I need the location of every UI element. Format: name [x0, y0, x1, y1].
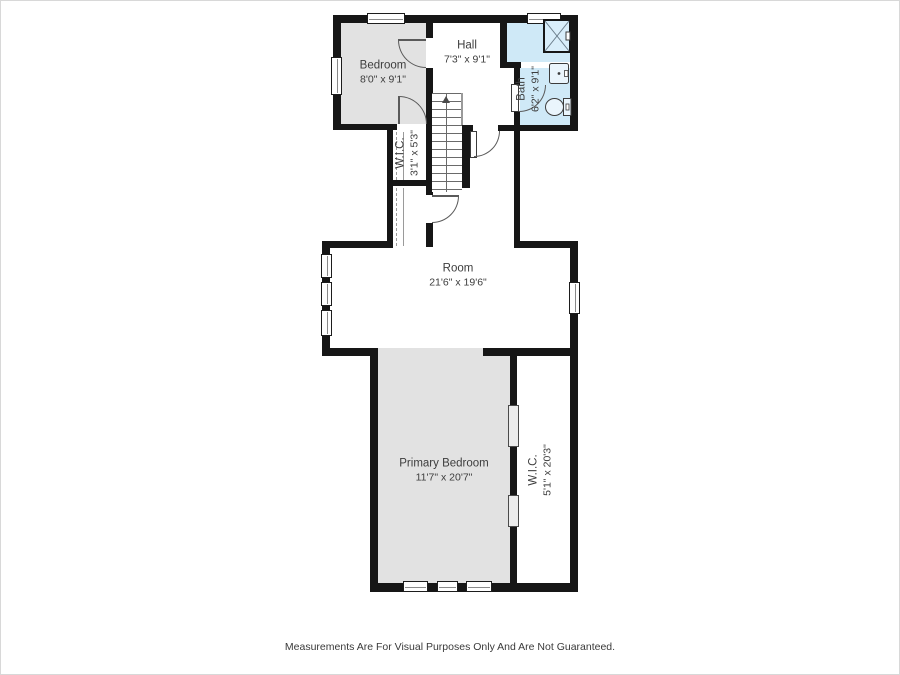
window	[321, 254, 332, 278]
wall-wic-bottom	[387, 180, 432, 186]
room-label-primary-bedroom: Primary Bedroom 11'7" x 20'7"	[399, 457, 488, 486]
shower-fixture	[543, 19, 571, 53]
room-name: Bath	[515, 66, 530, 112]
window	[569, 282, 580, 314]
room-name: W.I.C.	[394, 130, 409, 176]
room-label-wic-upper: W.I.C. 3'1" x 5'3"	[394, 130, 423, 176]
window	[367, 13, 405, 24]
window	[331, 57, 342, 95]
room-label-hall: Hall 7'3" x 9'1"	[444, 39, 490, 68]
room-dims: 21'6" x 19'6"	[429, 277, 487, 291]
room-primary-opening-fill	[378, 348, 483, 356]
wall-stair-stub	[462, 131, 470, 188]
wall-hall-bottom-b	[498, 125, 578, 131]
room-name: W.I.C.	[527, 444, 542, 496]
divider-door-panel-upper	[508, 405, 519, 447]
wall-landing-right	[514, 131, 520, 247]
room-dims: 6'2" x 9'1"	[530, 66, 544, 112]
wall-primary-wic-divider	[510, 348, 517, 592]
stairs-rail-line	[461, 93, 463, 125]
floor-plan-page: Bedroom 8'0" x 9'1" Hall 7'3" x 9'1" Bat…	[0, 0, 900, 675]
window	[466, 581, 492, 592]
room-dims: 3'1" x 5'3"	[409, 130, 423, 176]
divider-door-panel-lower	[508, 495, 519, 527]
door-arc	[432, 196, 459, 223]
room-dims: 11'7" x 20'7"	[399, 472, 488, 486]
room-name: Bedroom	[360, 59, 407, 74]
wall-primary-left	[370, 348, 378, 592]
room-dims: 5'1" x 20'3"	[542, 444, 556, 496]
closet-rod-dashed-lower	[396, 188, 397, 246]
wall-center-c	[426, 223, 433, 247]
toilet-fixture	[545, 97, 572, 117]
wall-wic-left	[387, 124, 393, 248]
wall-room-top-right	[514, 241, 578, 248]
window	[437, 581, 458, 592]
floor-plan: Bedroom 8'0" x 9'1" Hall 7'3" x 9'1" Bat…	[0, 0, 900, 675]
room-name: Room	[429, 262, 487, 277]
wall-bath-left-upper	[500, 15, 507, 68]
wall-bath-left-lower-b	[514, 112, 520, 125]
room-dims: 7'3" x 9'1"	[444, 54, 490, 68]
room-label-room: Room 21'6" x 19'6"	[429, 262, 487, 291]
window	[403, 581, 428, 592]
sink-fixture	[549, 63, 569, 84]
wall-room-top-left	[322, 241, 393, 248]
room-name: Hall	[444, 39, 490, 54]
wall-room-bottom-right	[483, 348, 578, 356]
disclaimer-text: Measurements Are For Visual Purposes Onl…	[285, 641, 615, 653]
wall-center-a	[426, 15, 433, 38]
room-dims: 8'0" x 9'1"	[360, 74, 407, 88]
stairs-center-line	[446, 94, 447, 192]
room-label-bath: Bath 6'2" x 9'1"	[515, 66, 544, 112]
stairs-up-arrow	[442, 96, 450, 103]
stairs	[432, 93, 462, 192]
window	[321, 282, 332, 306]
door-arc	[474, 131, 500, 157]
room-label-bedroom: Bedroom 8'0" x 9'1"	[360, 59, 407, 88]
closet-shelf-line-lower	[403, 188, 404, 246]
room-name: Primary Bedroom	[399, 457, 488, 472]
room-label-wic-primary: W.I.C. 5'1" x 20'3"	[527, 444, 556, 496]
window	[321, 310, 332, 336]
